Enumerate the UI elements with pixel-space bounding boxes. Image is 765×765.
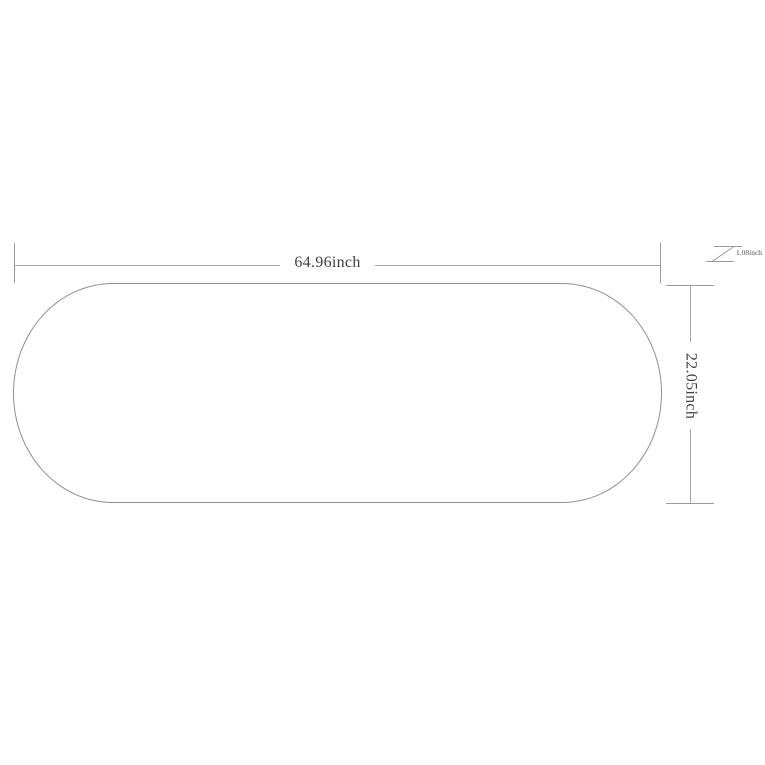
height-dim-bottom-tick — [666, 503, 714, 504]
height-dim-line-top — [690, 285, 691, 342]
thickness-diagonal-line — [712, 247, 734, 262]
width-dim-left-tick — [14, 243, 15, 283]
width-dim-line-left — [14, 265, 280, 266]
thickness-dim-label: 1.08inch — [736, 248, 762, 257]
width-dim-label: 64.96inch — [280, 253, 375, 272]
width-dim-right-tick — [660, 243, 661, 283]
tabletop-outline — [13, 283, 662, 503]
height-dim-label: 22.05inch — [682, 353, 701, 419]
dimension-diagram: 64.96inch 22.05inch 1.08inch — [0, 0, 765, 765]
height-dim-line-bottom — [690, 429, 691, 503]
width-dim-line-right — [375, 265, 660, 266]
